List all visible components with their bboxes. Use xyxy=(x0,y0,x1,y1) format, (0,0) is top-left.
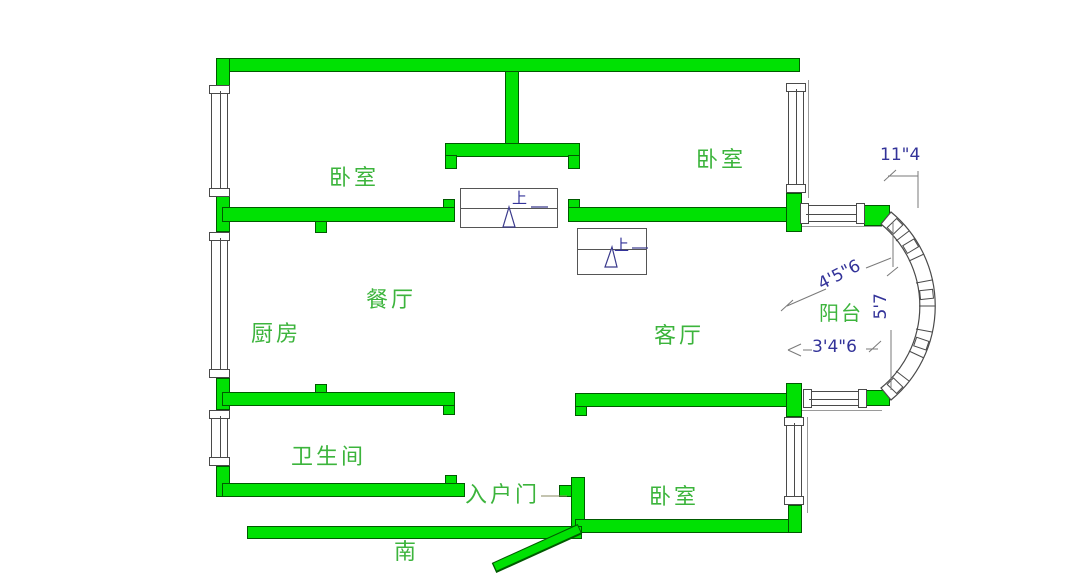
window-right-bedroom-top xyxy=(788,83,804,193)
wall-entry-post-nub xyxy=(559,485,572,497)
wall-bath-bottom xyxy=(222,483,465,497)
wall-junction-right-bottom xyxy=(786,383,802,417)
sill-line-right-top xyxy=(808,80,809,198)
wall-bedroom-bottom-right-corner xyxy=(788,505,802,533)
wall-kitchen-bath-tab-up xyxy=(315,384,327,393)
wall-balcony-nub-bottom xyxy=(866,390,890,406)
window-balcony-bottom xyxy=(803,391,867,406)
wall-divider-tab-left xyxy=(445,155,457,169)
stair-up-label: 上 xyxy=(512,191,527,206)
stair-symbol-2: 上 xyxy=(577,228,647,275)
window-balcony-top xyxy=(800,205,865,222)
sill-line-balcony-bottom xyxy=(797,410,882,411)
window-left-bedroom xyxy=(211,85,228,197)
wall-top xyxy=(222,58,800,72)
wall-bedroom-bottom-top-tab xyxy=(575,406,587,416)
stair-up-label: 上 xyxy=(614,238,629,253)
window-left-bathroom xyxy=(211,410,228,466)
wall-south-line xyxy=(247,526,582,539)
stair-divider xyxy=(461,208,557,209)
window-left-kitchen xyxy=(211,232,228,378)
sill-line-right-bottom xyxy=(807,417,808,513)
wall-bedroom-divider-vertical xyxy=(505,71,519,145)
dimension-top-right: 11"4 xyxy=(880,146,920,165)
dimension-balcony-upper: 4'5"6 xyxy=(815,257,864,294)
wall-middle-left-nub xyxy=(443,199,455,208)
wall-bedroom-divider-bar xyxy=(445,143,580,157)
wall-middle-left-tab xyxy=(315,221,327,233)
window-right-bedroom-bottom xyxy=(786,417,802,505)
compass-south-label: 南 xyxy=(394,540,419,566)
room-label-bedroom-top-left: 卧室 xyxy=(329,166,379,192)
wall-kitchen-bath-tab-down xyxy=(443,405,455,415)
room-label-bathroom: 卫生间 xyxy=(291,445,366,471)
sill-line-balcony-top xyxy=(797,226,882,227)
wall-middle-right-nub xyxy=(568,199,580,208)
dimension-balcony-lower: 3'4"6 xyxy=(812,338,857,357)
room-label-balcony: 阳台 xyxy=(819,301,863,325)
wall-middle-right xyxy=(568,207,800,222)
wall-divider-tab-right xyxy=(568,155,580,169)
room-label-bedroom-bottom: 卧室 xyxy=(649,485,699,511)
wall-bedroom-bottom-bottom xyxy=(575,519,802,533)
room-label-bedroom-top-right: 卧室 xyxy=(696,148,746,174)
stair-symbol-1: 上 xyxy=(460,188,558,228)
wall-bath-bottom-tab-up xyxy=(445,475,457,484)
room-label-dining: 餐厅 xyxy=(366,288,416,314)
wall-bedroom-bottom-top xyxy=(575,393,797,407)
wall-balcony-nub-top xyxy=(864,205,890,226)
room-label-kitchen: 厨房 xyxy=(251,322,301,348)
dimension-balcony-depth: 5'7 xyxy=(872,293,891,319)
wall-kitchen-bath xyxy=(222,392,455,406)
wall-middle-left xyxy=(222,207,455,222)
room-label-living: 客厅 xyxy=(654,324,704,350)
floor-plan: 上 上 卧室 卧室 餐厅 厨房 客厅 卫生间 入户门 卧室 阳台 南 11"4 … xyxy=(0,0,1080,578)
room-label-entrance-door: 入户门 xyxy=(465,483,540,509)
stair-divider xyxy=(578,249,646,250)
